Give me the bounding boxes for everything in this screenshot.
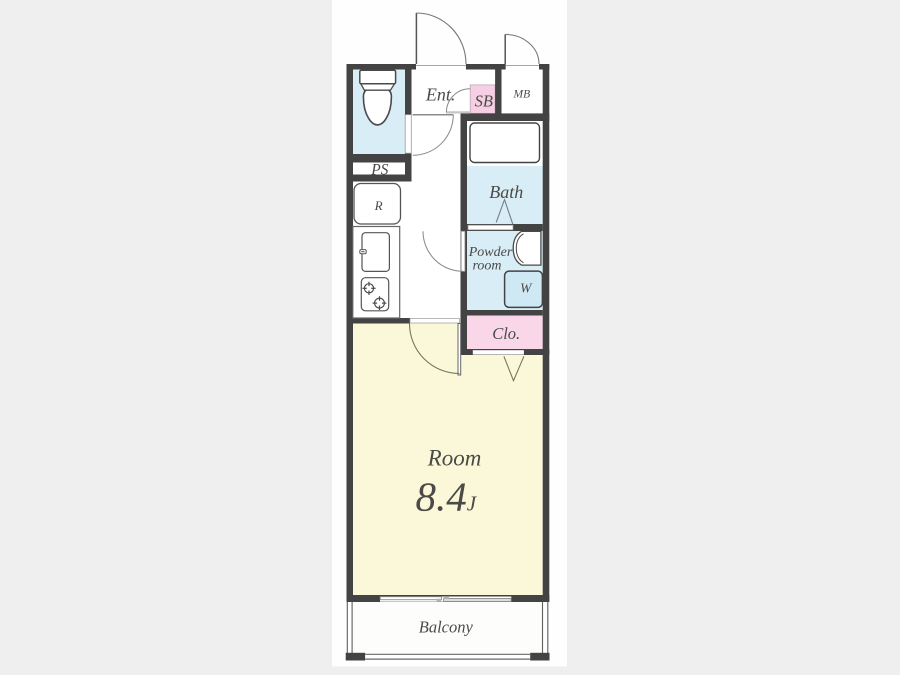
svg-text:Room: Room	[427, 446, 482, 471]
svg-text:Clo.: Clo.	[492, 324, 520, 343]
svg-text:PS: PS	[370, 161, 388, 178]
svg-text:room: room	[472, 258, 501, 273]
svg-text:Balcony: Balcony	[419, 618, 474, 637]
svg-text:SB: SB	[475, 91, 493, 110]
svg-text:Ent.: Ent.	[425, 85, 456, 105]
svg-text:R: R	[374, 198, 383, 213]
svg-text:Bath: Bath	[489, 182, 523, 202]
svg-text:W: W	[520, 281, 533, 296]
svg-text:MB: MB	[512, 88, 530, 100]
